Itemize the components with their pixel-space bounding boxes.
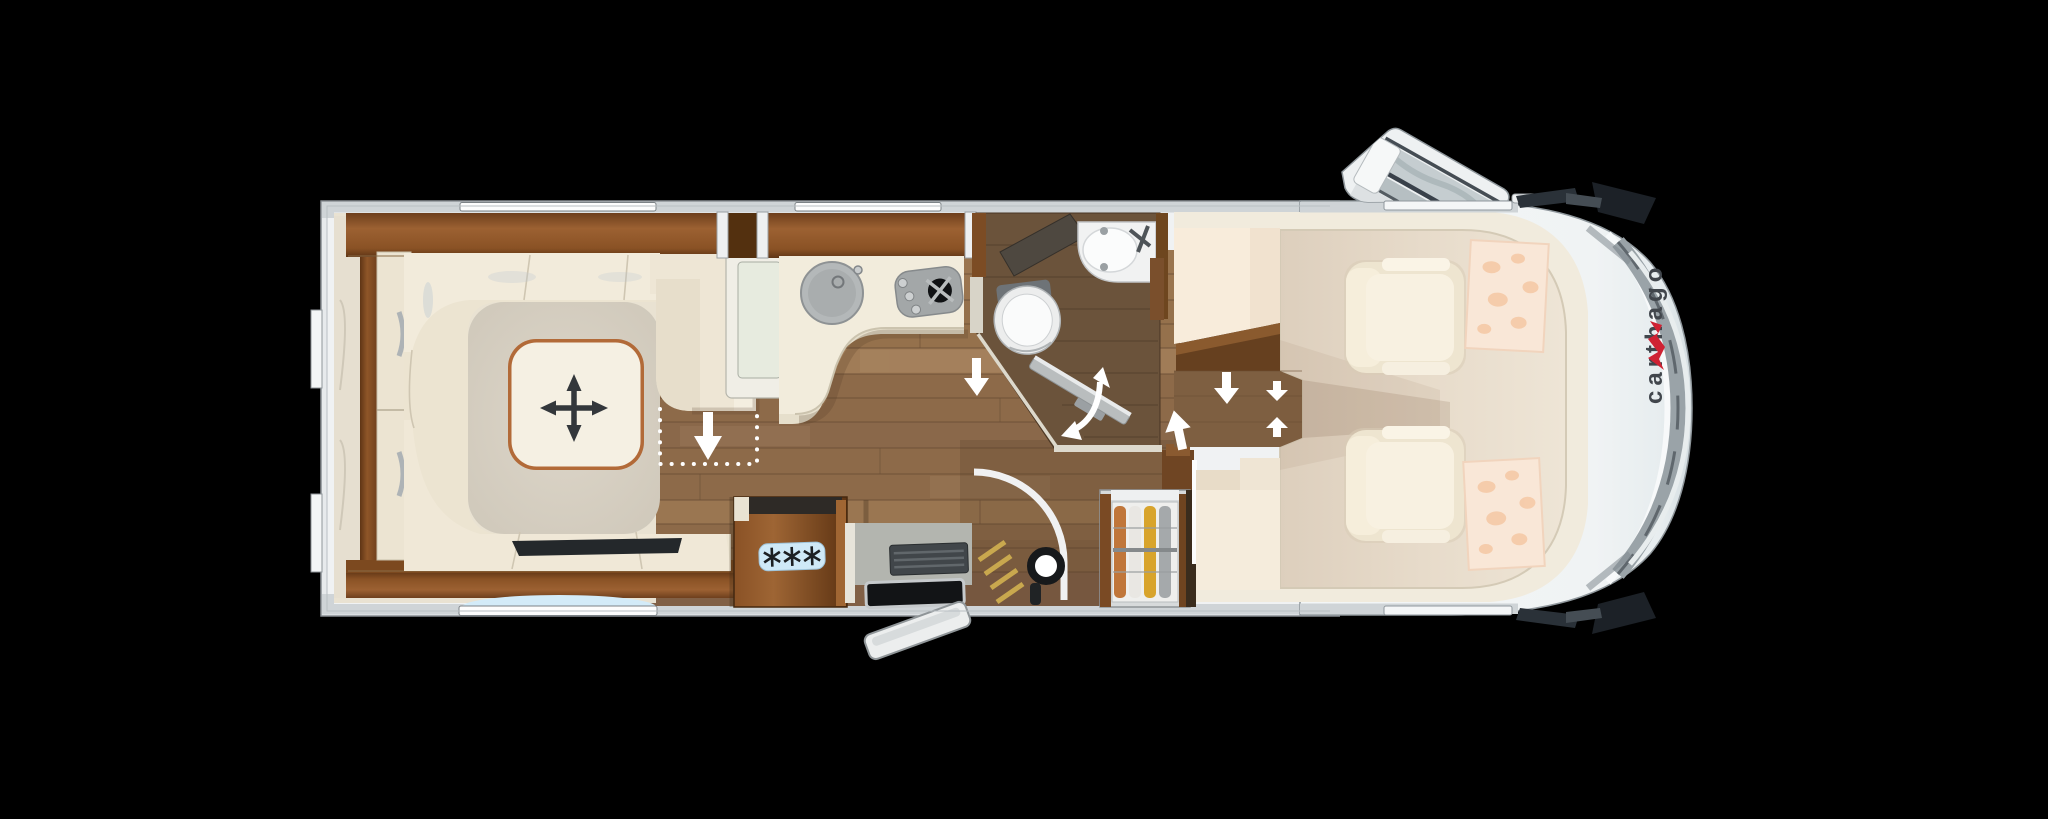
svg-text:carthago: carthago xyxy=(1641,263,1668,404)
